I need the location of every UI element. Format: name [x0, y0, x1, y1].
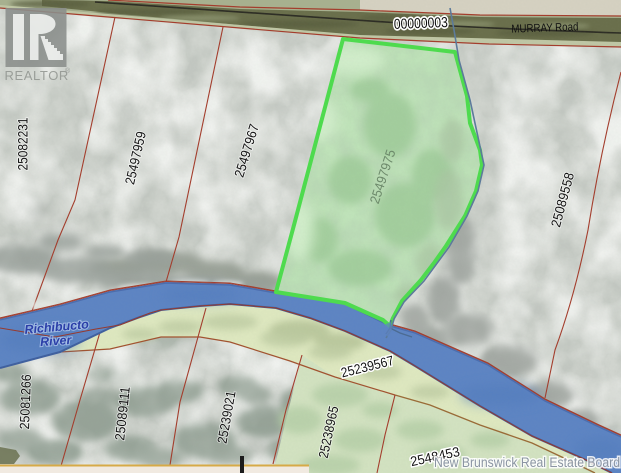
svg-text:®: ®: [65, 67, 71, 75]
svg-text:MURRAY Road: MURRAY Road: [511, 21, 578, 35]
svg-text:25082231: 25082231: [16, 118, 31, 171]
svg-text:25081266: 25081266: [17, 374, 34, 429]
svg-text:REALTOR: REALTOR: [5, 68, 69, 83]
svg-text:00000003: 00000003: [394, 15, 449, 33]
svg-text:River: River: [40, 333, 73, 349]
svg-text:New Brunswick Real Estate Boar: New Brunswick Real Estate Board: [434, 455, 620, 470]
